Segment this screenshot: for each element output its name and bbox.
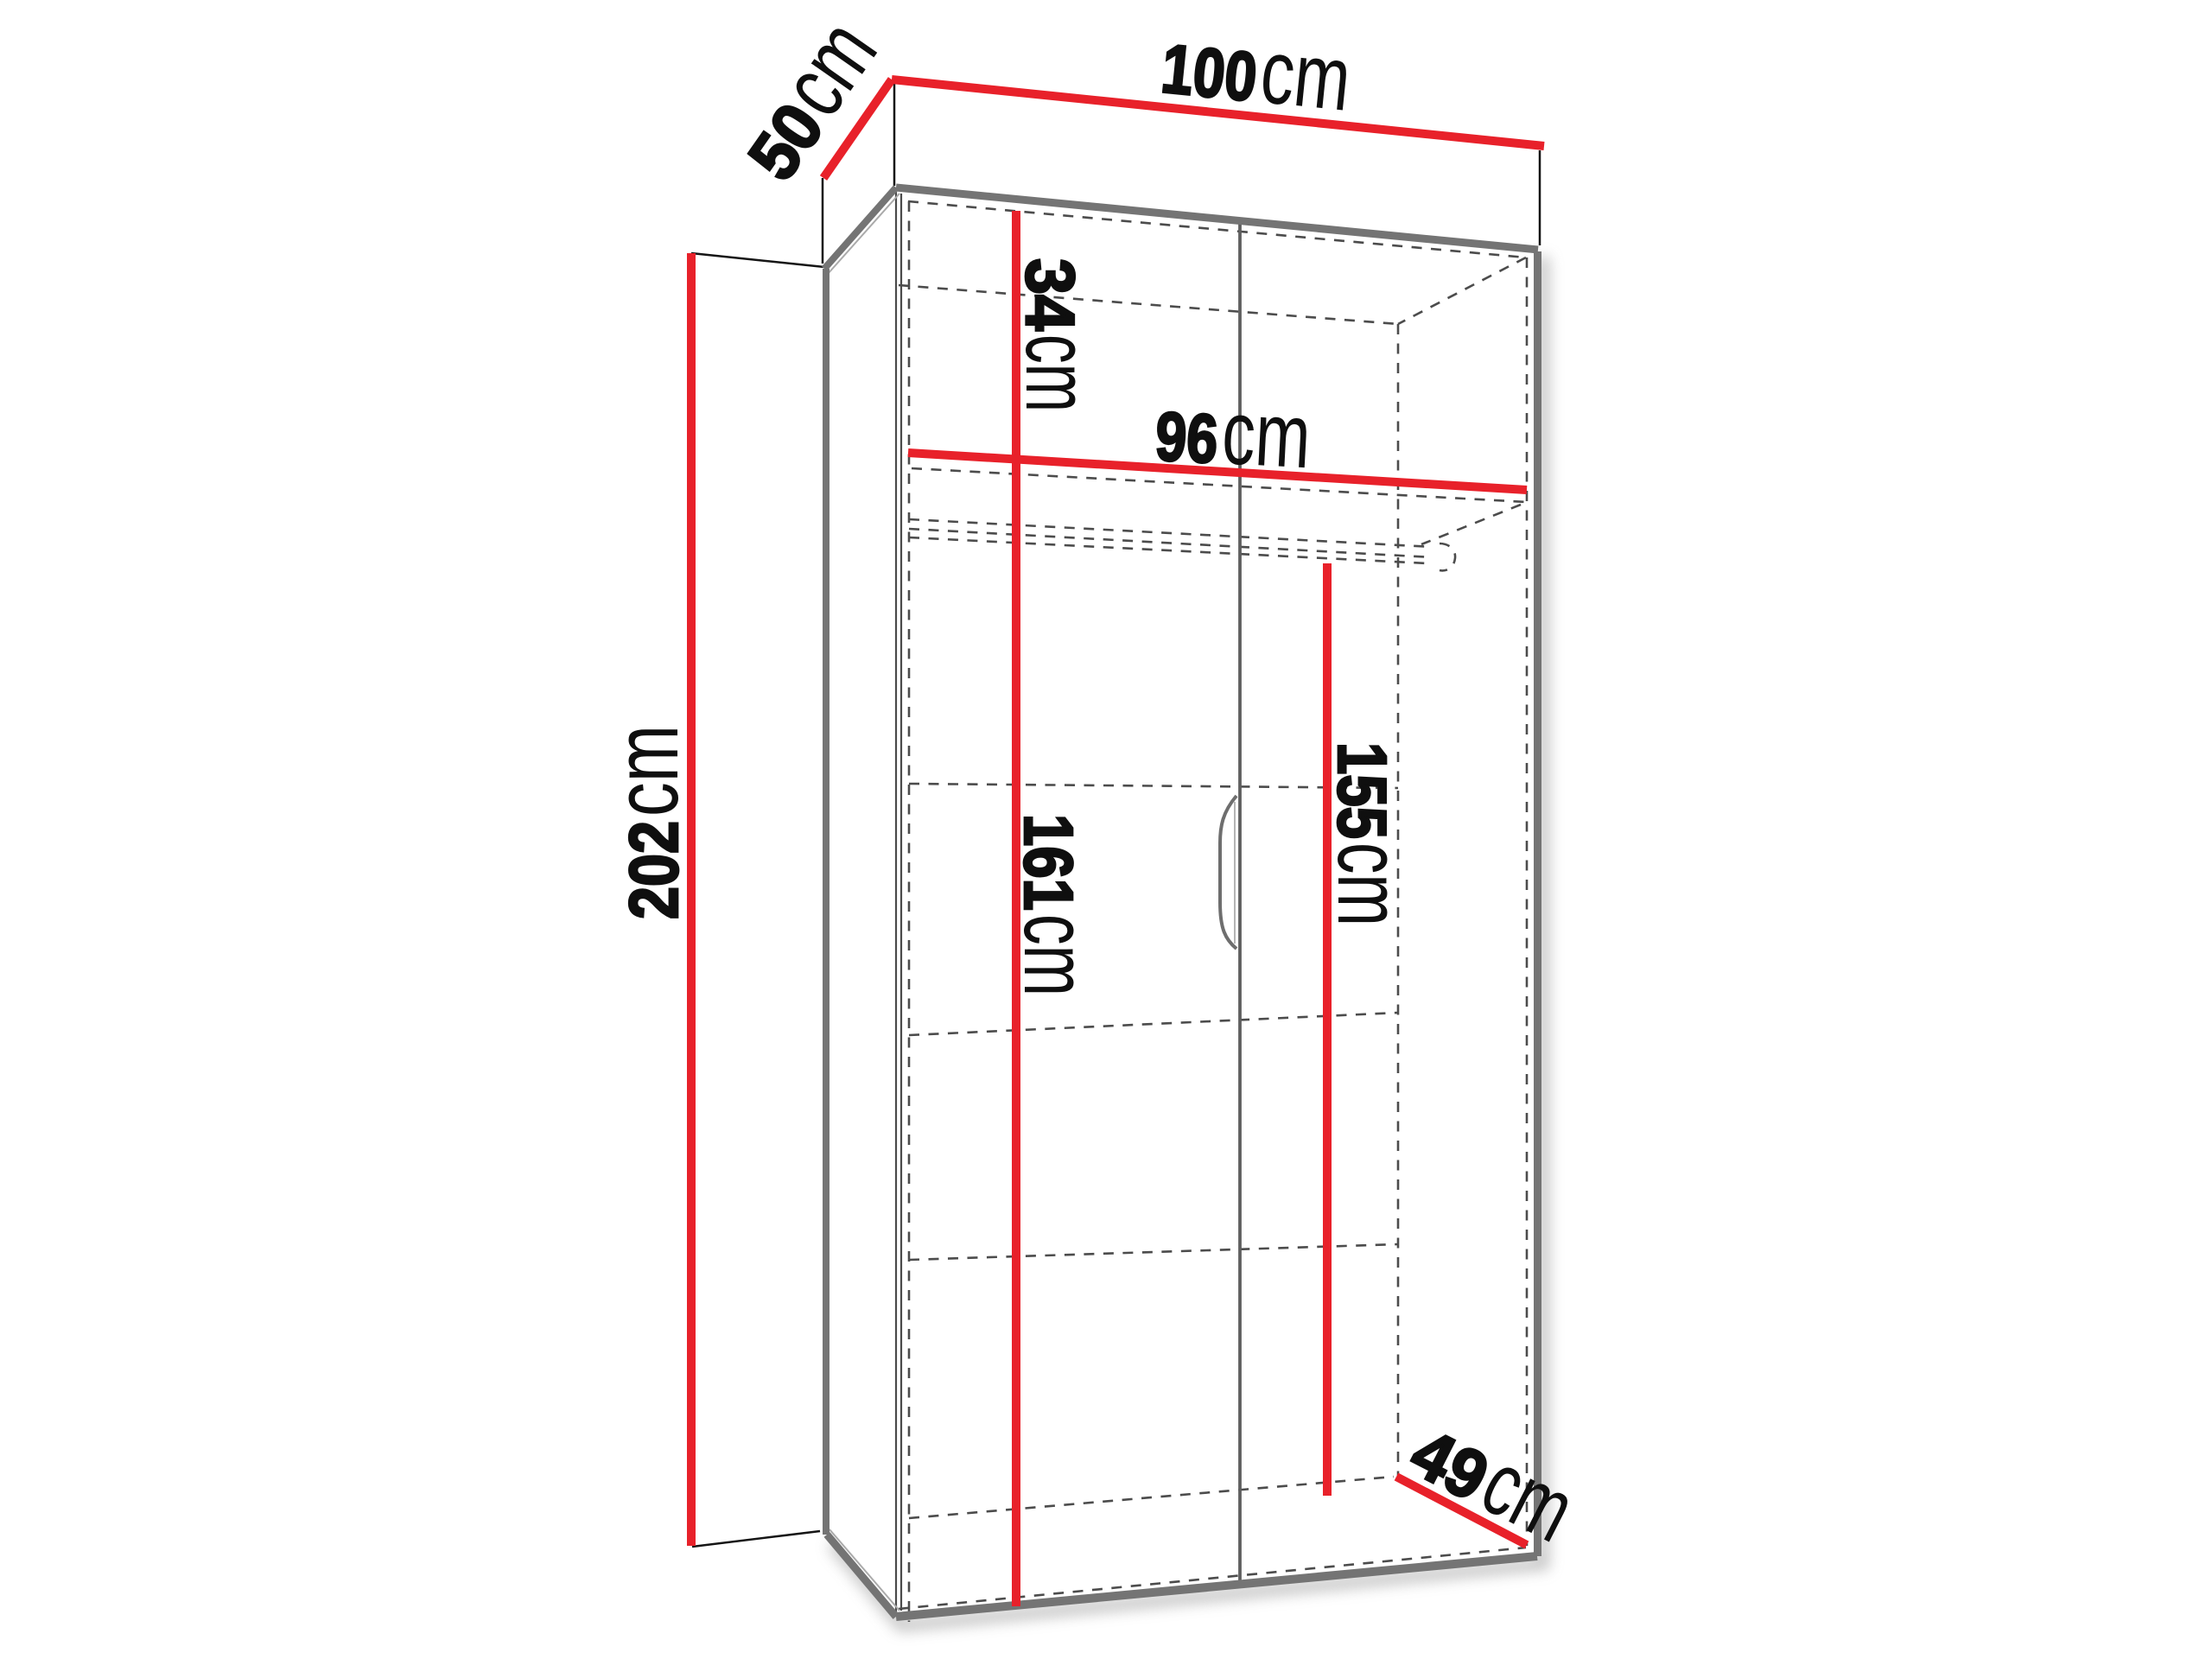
svg-text:50cm: 50cm [718,3,896,196]
svg-text:202cm: 202cm [596,725,697,919]
